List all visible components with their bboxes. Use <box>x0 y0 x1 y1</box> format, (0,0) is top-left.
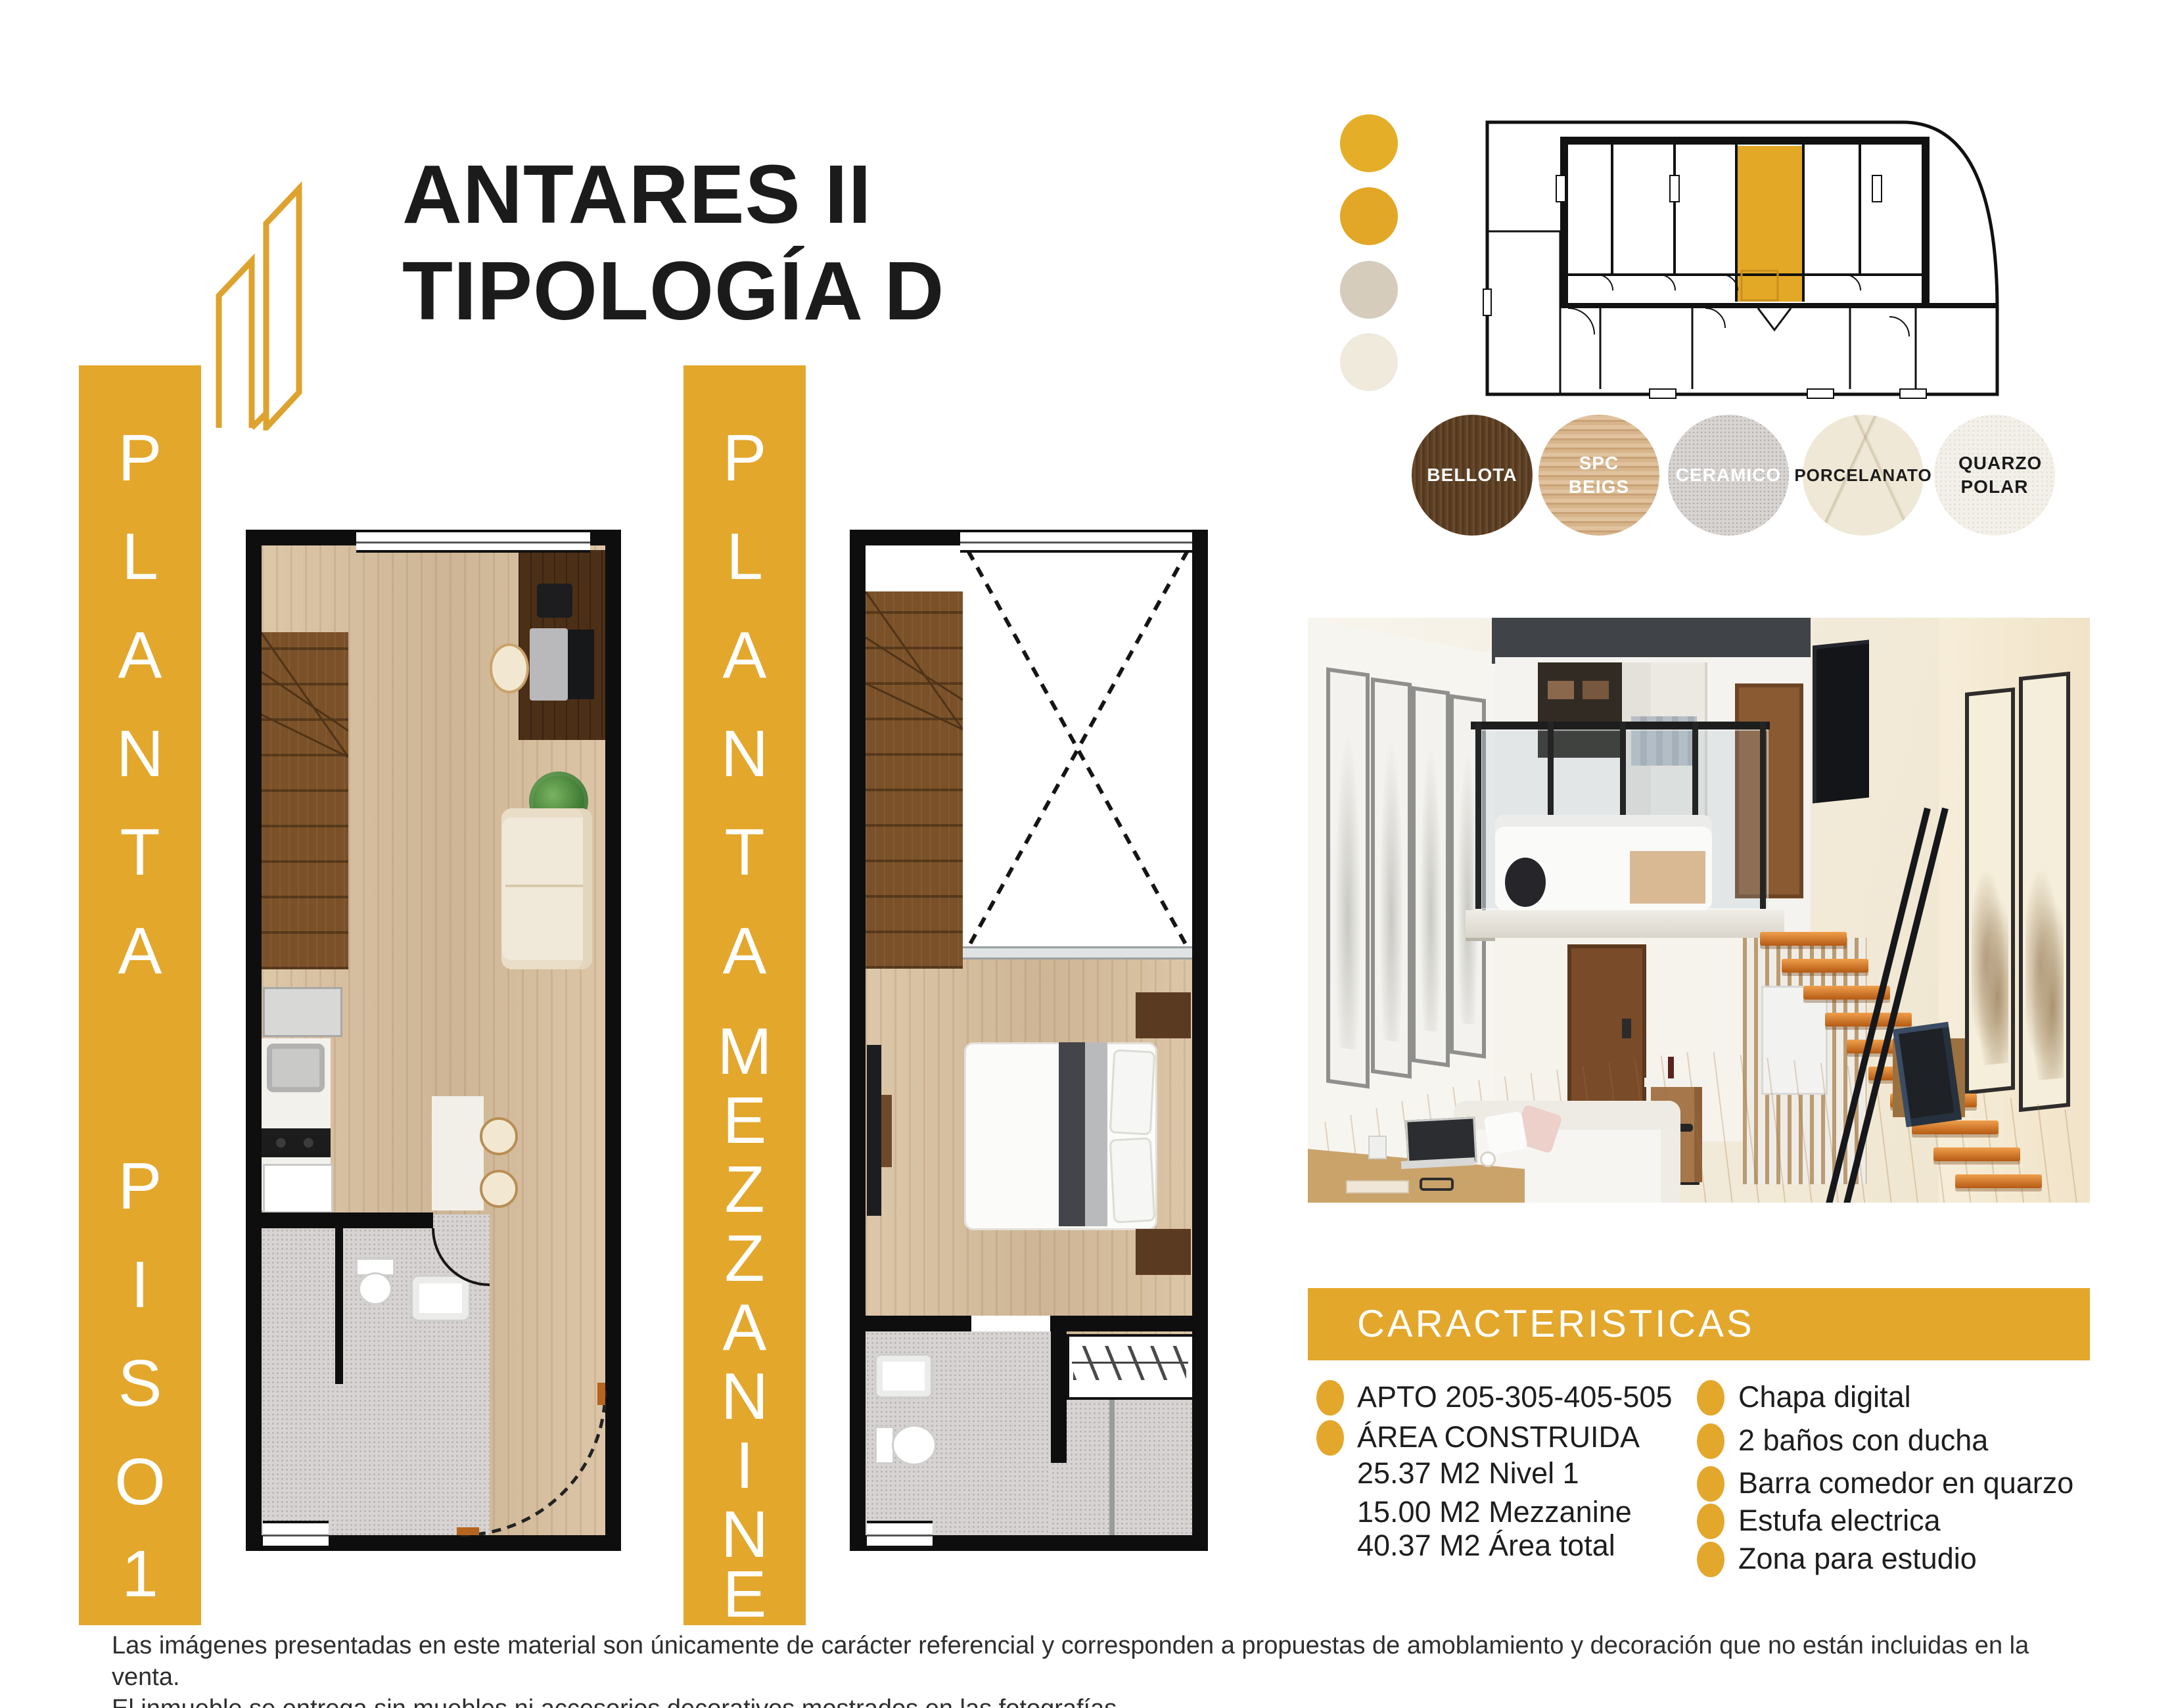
closet-hangers <box>1073 1346 1186 1380</box>
characteristic-subitem: 25.37 M2 Nivel 1 <box>1357 1456 1579 1490</box>
brochure-page: ANTARES II TIPOLOGÍA D P L A N T A P I S… <box>0 0 2174 1708</box>
bath-partition <box>1051 1316 1067 1463</box>
bath-sink <box>875 1354 933 1398</box>
key-plan <box>1482 113 2001 400</box>
characteristic-item: APTO 205-305-405-505 <box>1357 1380 1673 1414</box>
pillow <box>1109 1049 1156 1135</box>
window-top <box>960 530 1192 553</box>
bar-letter: A <box>79 622 201 688</box>
label-bar-planta-mezzanine: P L A N T A M E Z Z A N I N E <box>683 365 806 1625</box>
bar-letter: N <box>683 721 806 787</box>
swatch-label: CERAMICO <box>1676 463 1781 487</box>
window-bottom <box>263 1521 329 1548</box>
characteristics-title: CARACTERISTICAS <box>1357 1288 1755 1360</box>
wall-art-frame <box>1412 686 1450 1067</box>
palette-dot-gold-2 <box>1340 187 1398 245</box>
palette-dot-gold-1 <box>1340 114 1398 172</box>
bar-letter: N <box>79 721 201 787</box>
characteristic-item: Estufa electrica <box>1738 1504 1941 1538</box>
wall-art-frame <box>2019 672 2070 1112</box>
pillow <box>1109 1137 1156 1223</box>
swatch-label: BELLOTA <box>1427 463 1517 487</box>
bar-letter: Z <box>683 1157 806 1222</box>
tv-console <box>881 1095 892 1167</box>
wall-art-frame <box>1371 678 1412 1079</box>
bar-letter: O <box>79 1449 201 1515</box>
bar-letter: A <box>683 622 806 688</box>
characteristic-subitem: 40.37 M2 Área total <box>1357 1529 1615 1563</box>
bullet-icon <box>1316 1380 1344 1416</box>
bar-letter: S <box>79 1350 201 1416</box>
bar-letter: I <box>79 1252 201 1318</box>
railing-post <box>1475 722 1481 909</box>
bullet-icon <box>1697 1423 1724 1459</box>
pen-cup <box>1368 1136 1387 1159</box>
laundry-partition <box>1109 1397 1115 1535</box>
stair-tread <box>1955 1174 2042 1188</box>
nightstand <box>1136 1229 1191 1275</box>
bath-door-opening <box>971 1316 1050 1331</box>
bar-letter: T <box>79 819 201 885</box>
tv <box>867 1045 881 1216</box>
glass-partition <box>963 946 1192 959</box>
bar-letter: A <box>683 1295 806 1360</box>
bedside-stool <box>1505 858 1546 907</box>
swatch-label: SPC BEIGS <box>1563 451 1635 499</box>
sofa-pillow-white <box>1483 1111 1527 1155</box>
glasses <box>1420 1178 1454 1191</box>
bar-letter: M <box>683 1019 806 1084</box>
storage-box <box>1583 681 1609 699</box>
interior-render <box>1308 618 2090 1203</box>
bullet-icon <box>1697 1380 1724 1416</box>
characteristic-item: Zona para estudio <box>1738 1542 1977 1576</box>
bullet-icon <box>1697 1466 1724 1502</box>
toilet-bowl <box>892 1425 937 1466</box>
bullet-icon <box>1316 1420 1344 1456</box>
bar-letter: P <box>683 425 806 491</box>
railing-post <box>1760 722 1766 909</box>
label-bar-planta-piso-1: P L A N T A P I S O 1 <box>79 365 201 1625</box>
palette-dot-cream <box>1340 333 1398 391</box>
bar-letter: E <box>683 1088 806 1153</box>
bar-letter: P <box>79 1153 201 1219</box>
bar-letter: E <box>683 1561 806 1627</box>
highlighted-unit <box>1738 146 1802 302</box>
wall-art-frame <box>1326 667 1370 1088</box>
stair-tread <box>1782 959 1868 973</box>
mezzanine-slab <box>1466 910 1784 941</box>
characteristic-item: Barra comedor en quarzo <box>1738 1466 2073 1500</box>
bar-letter: A <box>683 918 806 984</box>
bar-letter: I <box>683 1433 806 1498</box>
digital-lock <box>1622 1019 1631 1038</box>
swatch-label: PORCELANATO <box>1794 463 1931 487</box>
swatch-spc-beigs: SPC BEIGS <box>1538 415 1659 536</box>
bullet-icon <box>1697 1504 1724 1539</box>
characteristics-header-bar: CARACTERISTICAS <box>1308 1288 2090 1360</box>
swatch-ceramico: CERAMICO <box>1668 415 1789 536</box>
bullet-icon <box>1697 1542 1724 1577</box>
swatch-label: QUARZO POLAR <box>1958 451 2031 499</box>
book <box>1346 1180 1409 1193</box>
coffee-cup <box>1480 1151 1496 1167</box>
loft-tv <box>1813 639 1869 803</box>
bed-sheet <box>1085 1042 1107 1226</box>
bar-letter: P <box>79 425 201 491</box>
characteristic-item: 2 baños con ducha <box>1738 1423 1988 1458</box>
floor-plan-mezzanine <box>850 530 1208 1551</box>
door-jamb <box>457 1527 479 1535</box>
bed-duvet-fold <box>1059 1042 1085 1226</box>
page-title-line2: TIPOLOGÍA D <box>402 242 944 339</box>
door-jamb <box>597 1383 605 1405</box>
floor-plan-piso-1 <box>246 530 621 1551</box>
disclaimer-line1: Las imágenes presentadas en este materia… <box>112 1630 2090 1693</box>
disclaimer: Las imágenes presentadas en este materia… <box>112 1630 2090 1708</box>
swatch-porcelanato: PORCELANATO <box>1803 415 1924 536</box>
bar-letter: 1 <box>79 1541 201 1607</box>
laundry-floor <box>1051 1397 1192 1535</box>
palette-dot-taupe <box>1340 261 1398 319</box>
bar-letter: T <box>683 819 806 885</box>
bed-throw <box>1630 851 1705 904</box>
characteristic-item: Chapa digital <box>1738 1380 1911 1414</box>
stair-tread <box>1933 1147 2020 1161</box>
page-title-line1: ANTARES II <box>402 146 944 242</box>
bar-letter: L <box>79 524 201 589</box>
window-bottom <box>867 1521 933 1548</box>
stair-tread <box>1760 932 1847 946</box>
disclaimer-line2: El inmueble se entrega sin muebles ni ac… <box>112 1693 2090 1708</box>
stair-tread <box>1825 1013 1912 1027</box>
bar-letter: N <box>683 1364 806 1429</box>
wall-art-frame <box>1965 687 2015 1095</box>
characteristic-item: ÁREA CONSTRUIDA <box>1357 1420 1640 1454</box>
bar-letter: Z <box>683 1226 806 1291</box>
bar-letter: L <box>683 524 806 589</box>
swatch-bellota: BELLOTA <box>1412 415 1533 536</box>
building-logo-icon <box>187 161 322 430</box>
bar-letter: A <box>79 918 201 984</box>
nightstand <box>1136 992 1191 1038</box>
door-arcs <box>246 530 621 1551</box>
swatch-quarzo-polar: QUARZO POLAR <box>1934 415 2055 536</box>
characteristic-subitem: 15.00 M2 Mezzanine <box>1357 1495 1632 1529</box>
storage-box <box>1548 681 1574 699</box>
